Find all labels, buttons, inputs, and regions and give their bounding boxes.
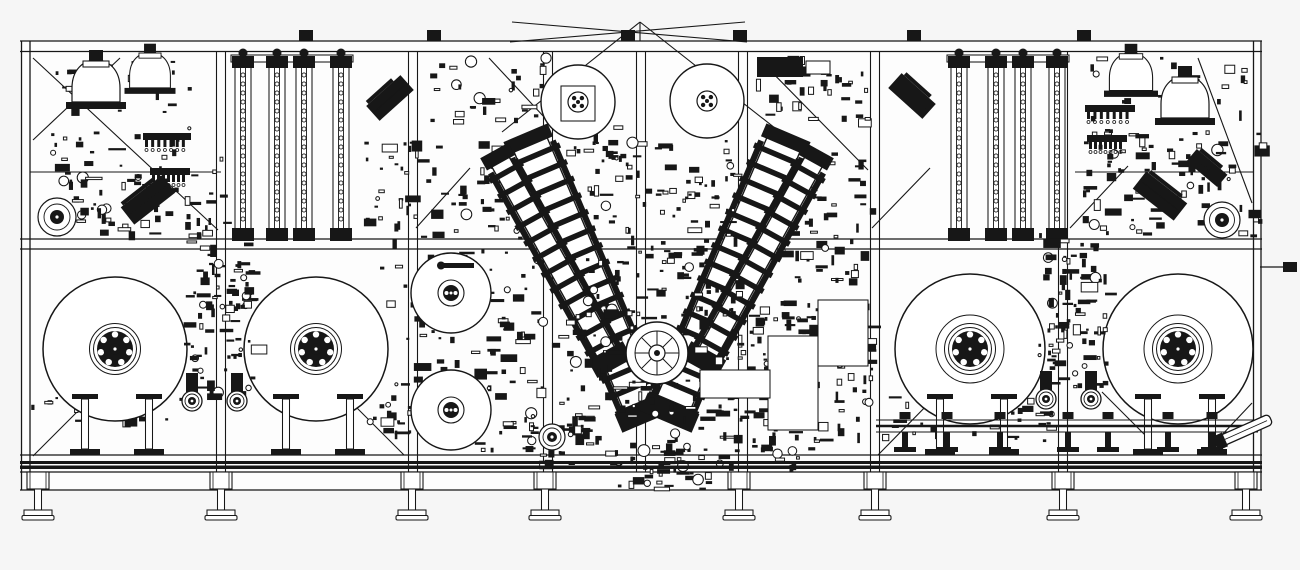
equipment-panel: [818, 300, 868, 366]
guide-roll-small: [1204, 202, 1240, 238]
feeder-track-column: [266, 49, 288, 242]
feeder-track-column: [232, 49, 254, 242]
web-roll-top: [670, 64, 744, 138]
winding-turret: [626, 322, 688, 384]
equipment-box: [757, 57, 803, 77]
guide-roll-small: [38, 198, 76, 236]
equipment-box: [806, 61, 830, 74]
leveling-foot: [205, 472, 237, 520]
guide-roll-small: [539, 424, 565, 450]
material-reel: [1103, 274, 1253, 424]
feeder-track-column: [293, 49, 315, 242]
feeder-track-column: [985, 49, 1007, 242]
leveling-foot: [859, 472, 891, 520]
equipment-panel: [700, 370, 770, 398]
cad-viewport: industrial-machine-elevation-cad-drawing: [0, 0, 1300, 570]
feeder-track-column: [330, 49, 352, 242]
material-reel: [43, 277, 187, 421]
leveling-foot: [22, 472, 54, 520]
feeder-track-column: [1012, 49, 1034, 242]
leveling-foot: [723, 472, 755, 520]
leveling-foot: [529, 472, 561, 520]
material-reel: [895, 274, 1045, 424]
leveling-foot: [1230, 472, 1262, 520]
feeder-track-column: [948, 49, 970, 242]
leveling-foot: [1047, 472, 1079, 520]
leveling-foot: [396, 472, 428, 520]
web-roll-mid: [411, 370, 491, 450]
machine-elevation-drawing: industrial-machine-elevation-cad-drawing: [0, 0, 1300, 570]
feeder-track-column: [1046, 49, 1068, 242]
equipment-panel: [768, 336, 818, 430]
web-roll-top: [541, 65, 615, 139]
